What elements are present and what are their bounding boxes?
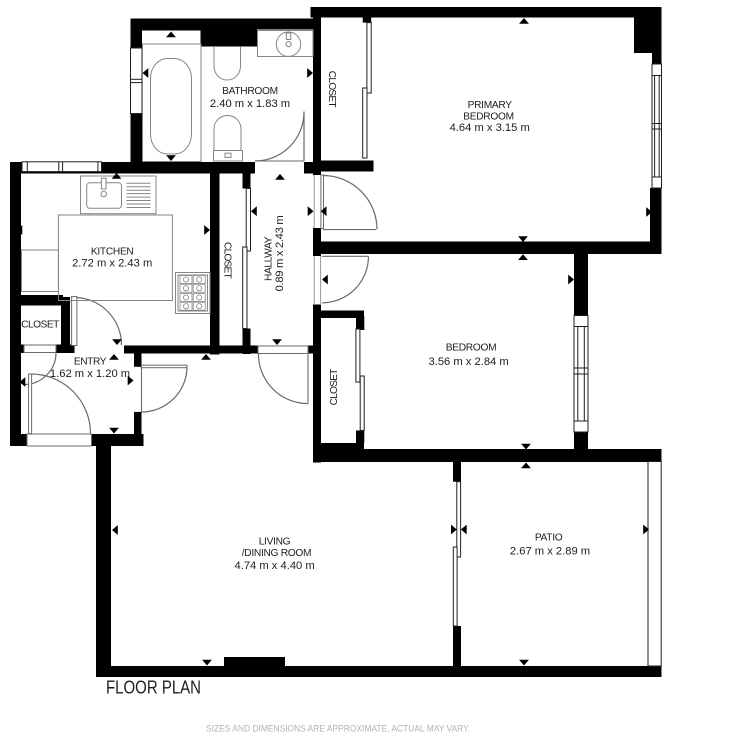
svg-text:ENTRY: ENTRY [74, 357, 107, 368]
svg-text:BEDROOM: BEDROOM [463, 111, 514, 122]
svg-text:CLOSET: CLOSET [329, 369, 340, 406]
svg-text:BATHROOM: BATHROOM [222, 86, 278, 97]
svg-text:CLOSET: CLOSET [221, 242, 232, 279]
svg-text:CLOSET: CLOSET [326, 71, 337, 108]
svg-text:PRIMARY: PRIMARY [468, 100, 513, 111]
svg-text:SIZES AND DIMENSIONS ARE APPRO: SIZES AND DIMENSIONS ARE APPROXIMATE, AC… [206, 724, 470, 734]
svg-text:LIVING: LIVING [259, 537, 291, 548]
svg-text:PATIO: PATIO [535, 533, 563, 544]
svg-text:/DINING ROOM: /DINING ROOM [242, 548, 311, 559]
svg-text:0.89 m x 2.43 m: 0.89 m x 2.43 m [274, 216, 286, 292]
svg-text:FLOOR PLAN: FLOOR PLAN [106, 677, 201, 698]
svg-text:4.74 m x 4.40 m: 4.74 m x 4.40 m [234, 560, 314, 572]
svg-text:2.67 m x 2.89 m: 2.67 m x 2.89 m [510, 546, 590, 558]
svg-text:4.64 m x 3.15 m: 4.64 m x 3.15 m [450, 122, 530, 134]
svg-text:3.56 m x 2.84 m: 3.56 m x 2.84 m [428, 356, 508, 368]
svg-text:CLOSET: CLOSET [21, 320, 59, 331]
svg-text:KITCHEN: KITCHEN [91, 247, 134, 258]
svg-text:2.72 m x 2.43 m: 2.72 m x 2.43 m [72, 258, 152, 270]
svg-text:BEDROOM: BEDROOM [446, 343, 497, 354]
svg-text:2.40 m x 1.83 m: 2.40 m x 1.83 m [210, 98, 290, 110]
svg-text:HALLWAY: HALLWAY [263, 236, 274, 281]
svg-text:1.62 m x 1.20 m: 1.62 m x 1.20 m [50, 368, 130, 380]
